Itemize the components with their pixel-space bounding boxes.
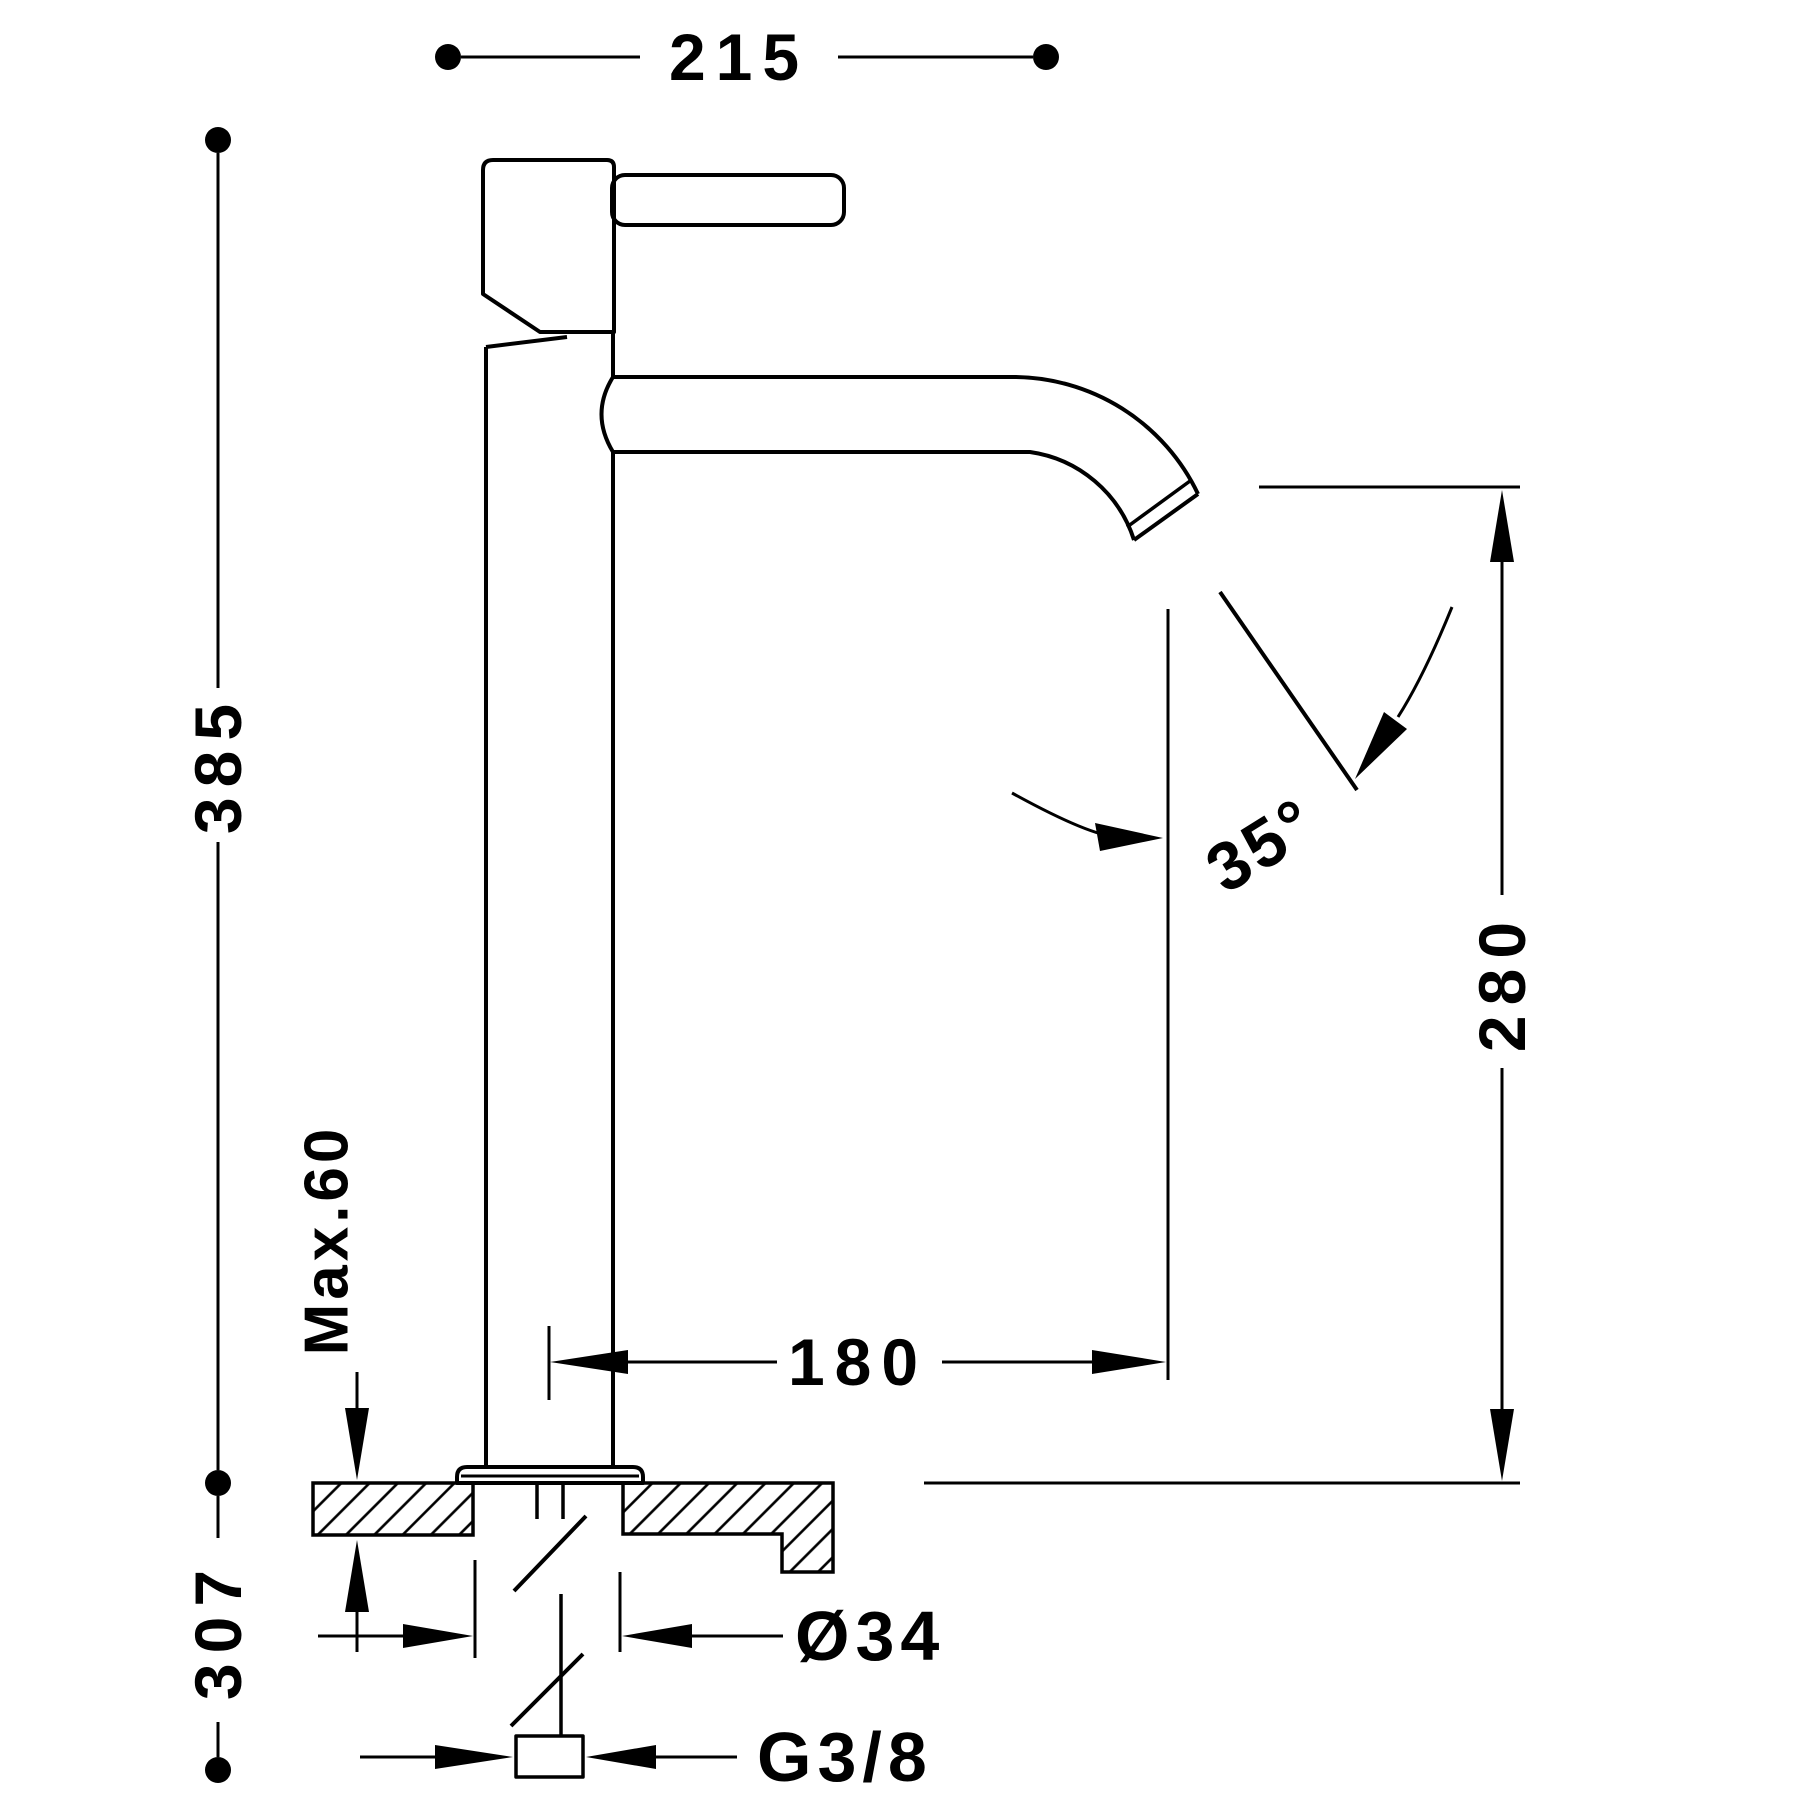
dim-label-215: 215 bbox=[669, 20, 809, 94]
dim-endpoint-dot bbox=[205, 1757, 231, 1783]
dim-endpoint-dot bbox=[205, 1470, 231, 1496]
countertop-hatch-left bbox=[313, 1483, 473, 1535]
dim-label-max60: Max.60 bbox=[293, 1125, 362, 1356]
dim-endpoint-dot bbox=[205, 127, 231, 153]
faucet-dimension-drawing: 215 385 307 Max.60 280 18 bbox=[0, 0, 1800, 1800]
drawing-background bbox=[0, 0, 1800, 1800]
dim-endpoint-dot bbox=[1033, 44, 1059, 70]
dim-label-280: 280 bbox=[1465, 912, 1539, 1052]
dim-endpoint-dot bbox=[435, 44, 461, 70]
dim-label-180: 180 bbox=[788, 1325, 928, 1399]
technical-drawing-page: 215 385 307 Max.60 280 18 bbox=[0, 0, 1800, 1800]
dim-label-385: 385 bbox=[181, 694, 255, 834]
dim-label-g38: G3/8 bbox=[757, 1718, 933, 1796]
dim-label-307: 307 bbox=[181, 1560, 255, 1700]
dim-label-d34: Ø34 bbox=[795, 1597, 945, 1675]
